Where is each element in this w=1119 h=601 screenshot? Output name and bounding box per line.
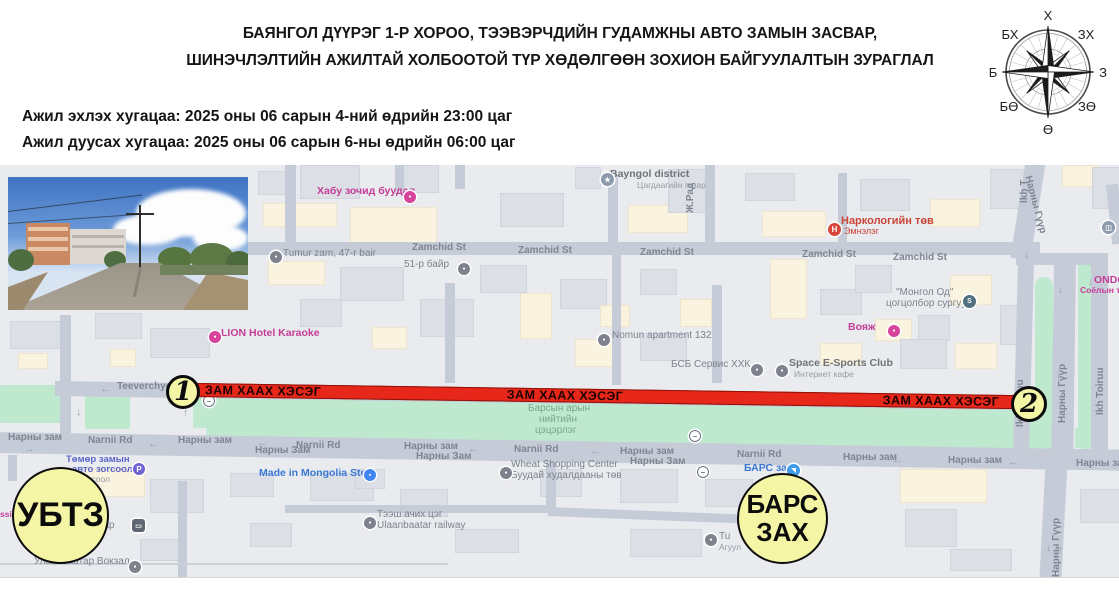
parking-icon: P [133, 463, 145, 475]
badge-text: ЗАХ [756, 519, 808, 546]
road-restriction-icon: – [697, 466, 709, 478]
map-label: Made in Mongolia Store [259, 468, 377, 479]
map-label: Bayngol district [610, 169, 689, 180]
building [640, 269, 677, 295]
map-label: Ulaanbaatar railway [377, 521, 465, 531]
park-area [1035, 277, 1053, 449]
building [520, 293, 552, 339]
building [955, 343, 997, 369]
svg-text:БХ: БХ [1002, 27, 1019, 42]
building [900, 469, 987, 503]
work-schedule: Ажил эхлэх хугацаа: 2025 оны 06 сарын 4-… [22, 104, 515, 155]
closure-marker-1: 1 [166, 375, 200, 409]
building [300, 299, 342, 327]
place-pin-icon: ● [598, 334, 610, 346]
building [745, 173, 795, 201]
road-segment [705, 165, 715, 245]
map-label: ↓ [1088, 277, 1094, 288]
karaoke-pin-icon: ● [209, 331, 221, 343]
road-segment [1051, 261, 1076, 455]
station-pin-icon: ● [129, 561, 141, 573]
place-pin-icon: ● [500, 467, 512, 479]
building [860, 179, 910, 211]
map-label: Хабу зочид буудал [317, 186, 415, 197]
map-label: Агуул [719, 543, 741, 552]
map-label: нийтийн [539, 415, 577, 425]
map-label: Цагдаагийн газар [637, 181, 706, 190]
map-label: ← [257, 438, 268, 449]
map-label: Zamchid St [893, 253, 947, 263]
map-label: Narnii Rd [737, 450, 781, 460]
place-pin-icon: ● [705, 534, 717, 546]
map-label: Nomun apartment 132 [612, 331, 712, 341]
map-label: ← [892, 455, 903, 466]
map-label: Барсын арын [528, 404, 590, 414]
map-label: Нарны Зам [630, 457, 685, 467]
map-label: Ikh Toiruu [1096, 367, 1106, 415]
map-canvas[interactable]: Zamchid StZamchid StZamchid StZamchid St… [0, 165, 1119, 578]
map-label: ↑ [183, 408, 189, 419]
work-end-time: Ажил дуусах хугацаа: 2025 оны 06 сарын 6… [22, 130, 515, 156]
building [10, 321, 62, 349]
badge-ubtz: УБТЗ [12, 467, 109, 564]
place-pin-icon: ● [364, 517, 376, 529]
title-line-2: ШИНЭЧЛЭЛТИЙН АЖИЛТАЙ ХОЛБООТОЙ ТҮР ХӨДӨЛ… [60, 47, 1060, 74]
building [110, 349, 136, 367]
road-segment [1106, 184, 1119, 245]
building [500, 193, 564, 227]
map-label: Нарны зам [178, 436, 232, 446]
page-title: БАЯНГОЛ ДҮҮРЭГ 1-Р ХОРОО, ТЭЭВЭРЧДИЙН ГУ… [60, 20, 1060, 74]
map-label: Тээш ачих цэг [377, 510, 443, 520]
svg-text:ЗӨ: ЗӨ [1078, 99, 1096, 114]
shop-pin-icon: ● [888, 325, 900, 337]
building [150, 479, 204, 513]
map-label: 51-р байр [404, 260, 449, 270]
svg-text:З: З [1099, 65, 1107, 80]
building [18, 353, 48, 369]
map-label: Нарны зам [948, 456, 1002, 466]
road-restriction-icon: – [689, 430, 701, 442]
map-label: Буудай худалдааны төв [511, 471, 622, 481]
map-label: Нарны зам [843, 453, 897, 463]
hotel-pin-icon: ● [404, 191, 416, 203]
badge-bars-zah: БАРСЗАХ [737, 473, 828, 564]
building [150, 328, 210, 358]
map-label: Space E-Sports Club [789, 358, 893, 369]
traffic-plan-page: БАЯНГОЛ ДҮҮРЭГ 1-Р ХОРОО, ТЭЭВЭРЧДИЙН ГУ… [0, 0, 1119, 601]
building [575, 167, 601, 189]
map-label: Эмнэлэг [844, 227, 879, 236]
building [480, 265, 527, 293]
map-label: Tu [719, 532, 730, 542]
map-label: ↓ [1058, 285, 1064, 296]
svg-text:Б: Б [989, 65, 998, 80]
map-label: БСБ Сервис ХХК [671, 360, 750, 370]
closure-marker-2: 2 [1011, 386, 1047, 422]
map-label: ← [468, 444, 479, 455]
building [620, 469, 678, 503]
badge-text: УБТЗ [17, 498, 104, 534]
building [1080, 489, 1119, 523]
map-label: цэцэрлэг [535, 426, 576, 436]
map-label: Zamchid St [640, 248, 694, 258]
place-pin-icon: ● [458, 263, 470, 275]
map-label: Narnii Rd [296, 441, 340, 451]
hospital-icon: H [828, 223, 841, 236]
building [350, 207, 437, 247]
map-label: Teeverchyd [117, 382, 172, 392]
map-label: Вояж [848, 322, 875, 333]
title-line-1: БАЯНГОЛ ДҮҮРЭГ 1-Р ХОРОО, ТЭЭВЭРЧДИЙН ГУ… [60, 20, 1060, 47]
building [905, 509, 957, 547]
map-label: "Монгол Од" [896, 288, 953, 298]
closure-label: ЗАМ ХААХ ХЭСЭГ [883, 393, 1000, 409]
map-label: → [24, 444, 35, 455]
building [268, 261, 325, 285]
building [95, 313, 142, 339]
map-label: Zamchid St [518, 246, 572, 256]
building [340, 267, 404, 301]
street-photo-inset [8, 177, 248, 310]
map-label: Нарны Зам [416, 452, 471, 462]
school-icon: S [963, 295, 976, 308]
badge-text: БАРС [747, 491, 819, 518]
railway-station-icon: ▭ [132, 519, 145, 532]
map-label: Zamchid St [412, 243, 466, 253]
museum-icon: ◫ [1102, 221, 1115, 234]
map-label: Интернет кафе [794, 370, 854, 379]
road-segment [285, 165, 296, 245]
map-label: ← [590, 446, 601, 457]
building [250, 523, 292, 547]
map-label: ← [1008, 457, 1019, 468]
place-pin-icon: ● [270, 251, 282, 263]
map-label: Нарны зам [8, 433, 62, 443]
building [258, 171, 286, 195]
building [855, 265, 892, 293]
map-label: Ikh T [1020, 180, 1030, 203]
building [950, 549, 1012, 571]
building [762, 211, 826, 237]
road-segment [612, 255, 621, 385]
work-start-time: Ажил эхлэх хугацаа: 2025 оны 06 сарын 4-… [22, 104, 515, 130]
map-label: БАРС зах [744, 463, 793, 474]
place-pin-icon: ● [776, 365, 788, 377]
closure-label: ЗАМ ХААХ ХЭСЭГ [205, 383, 322, 399]
building [263, 203, 337, 227]
svg-text:БӨ: БӨ [1000, 99, 1019, 114]
map-label: ↓ [1046, 543, 1052, 554]
building [630, 529, 702, 557]
map-label: ONDO [1094, 275, 1119, 286]
map-label: Narnii Rd [88, 436, 132, 446]
building [770, 259, 807, 319]
building [930, 199, 980, 227]
map-label: Zamchid St [802, 250, 856, 260]
building [455, 529, 519, 553]
map-label: Narnii Rd [514, 445, 558, 455]
closure-label: ЗАМ ХААХ ХЭСЭГ [507, 388, 624, 404]
road-segment [455, 165, 465, 189]
road-segment [60, 315, 71, 385]
map-label: Wheat Shopping Center [511, 460, 618, 470]
building [372, 327, 407, 349]
map-label: LION Hotel Karaoke [221, 328, 320, 339]
police-icon: ★ [601, 173, 614, 186]
map-label: ↓ [1024, 250, 1030, 261]
map-label: Соёлын төв [1080, 286, 1119, 295]
map-label: ← [100, 384, 111, 395]
building [680, 299, 712, 327]
map-label: Нарны зам [1076, 459, 1119, 469]
store-icon: ▪ [364, 469, 376, 481]
map-label: ← [148, 439, 159, 450]
compass-rose-icon: Х Ө Б З БХ ЗХ БӨ ЗӨ [986, 8, 1110, 136]
map-label: ↓ [1056, 370, 1062, 381]
map-label: ↓ [76, 407, 82, 418]
map-label: ↑ [1058, 545, 1064, 556]
road-segment [8, 455, 17, 481]
svg-text:Ө: Ө [1043, 122, 1053, 136]
svg-text:ЗХ: ЗХ [1078, 27, 1095, 42]
building [918, 315, 950, 341]
park-area [0, 385, 62, 423]
map-label: Tumur zam, 47-r bair [283, 249, 376, 259]
place-pin-icon: ● [751, 364, 763, 376]
road-segment [445, 283, 455, 383]
building [900, 339, 947, 369]
svg-text:Х: Х [1044, 8, 1053, 23]
